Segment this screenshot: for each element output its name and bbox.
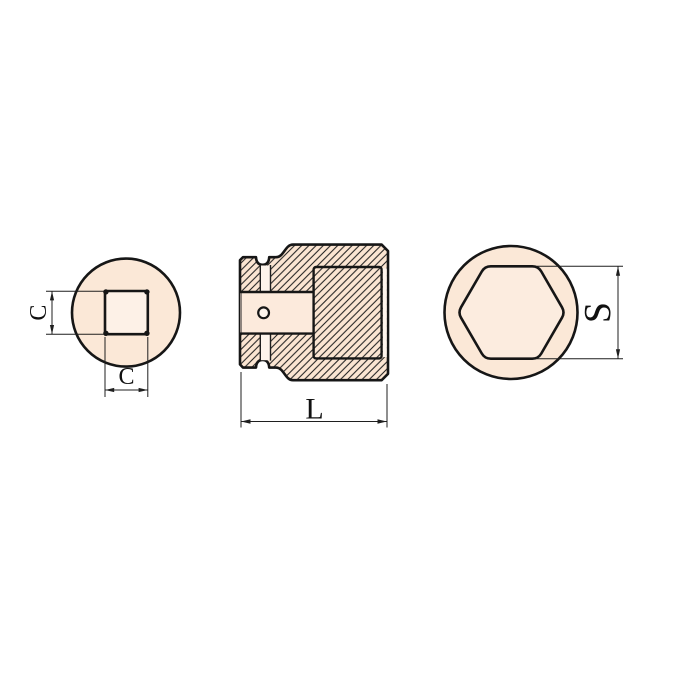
arrowhead-right-icon [378,419,388,423]
arrowhead-down-icon [50,325,54,334]
square-corner-relief [144,331,149,336]
arrowhead-up-icon [50,291,54,300]
arrowhead-down-icon [616,349,620,359]
square-drive-recess [105,291,148,334]
dim-label-c-vertical: C [26,305,52,321]
pin-hole-lower-wall [260,333,271,360]
drawing-page: C C L [0,0,700,700]
recess-opening-chamfer [383,268,387,357]
square-drive-channel [240,292,314,334]
arrowhead-right-icon [139,388,148,392]
square-corner-relief [103,289,108,294]
dim-label-s: S [577,302,619,323]
arrowhead-up-icon [616,266,620,276]
dim-label-l: L [305,393,323,426]
square-corner-relief [144,289,149,294]
pin-hole-circle [258,307,269,318]
pin-hole-upper-wall [260,266,271,293]
arrowhead-left-icon [105,388,114,392]
socket-technical-drawing: C C L [0,0,700,700]
dim-label-c-horizontal: C [118,364,134,390]
section-view: L [240,245,388,428]
square-drive-end-view: C C [26,259,180,397]
square-corner-relief [103,331,108,336]
hex-end-view: S [445,246,624,379]
arrowhead-left-icon [241,419,251,423]
